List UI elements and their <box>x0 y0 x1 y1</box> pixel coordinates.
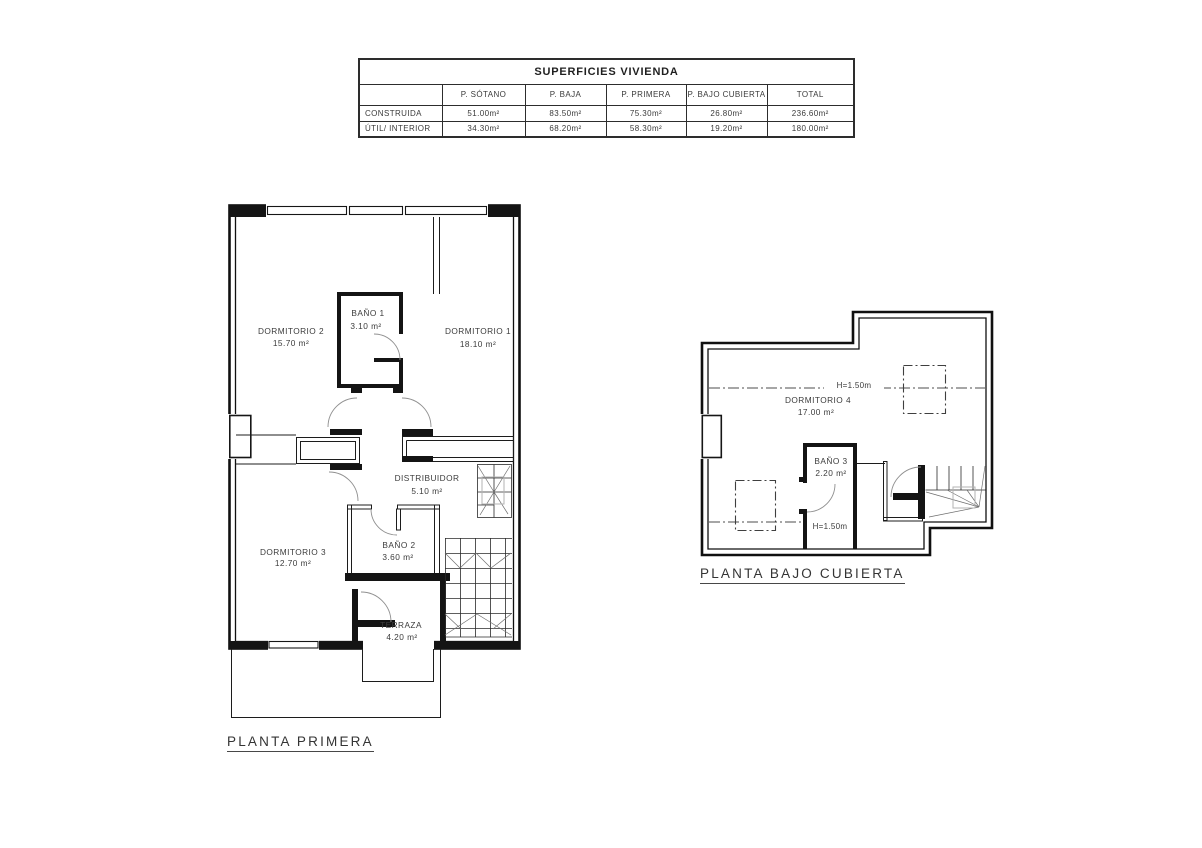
room-label-dormitorio1: DORMITORIO 1 <box>445 326 511 336</box>
room-area-dormitorio4: 17.00 m² <box>798 407 834 417</box>
table-col-header: P. BAJO CUBIERTA <box>686 84 767 105</box>
superficies-table: SUPERFICIES VIVIENDA P. SÓTANO P. BAJA P… <box>358 58 855 138</box>
planta-primera-drawing: DORMITORIO 2 15.70 m² BAÑO 1 3.10 m² DOR… <box>225 200 525 750</box>
table-cell: 83.50m² <box>525 105 606 121</box>
room-area-dormitorio1: 18.10 m² <box>460 339 496 349</box>
outer-walls <box>702 312 992 555</box>
table-cell: 236.60m² <box>767 105 854 121</box>
table-row-label: ÚTIL/ INTERIOR <box>359 121 442 137</box>
height-annotation-2: H=1.50m <box>813 522 848 531</box>
table-cell: 68.20m² <box>525 121 606 137</box>
table-cell: 34.30m² <box>442 121 525 137</box>
floor-plan-sheet: { "table": { "title": "SUPERFICIES VIVIE… <box>0 0 1202 848</box>
table-cell: 26.80m² <box>686 105 767 121</box>
vent-shaft <box>434 217 440 294</box>
room-area-dormitorio3: 12.70 m² <box>275 558 311 568</box>
table-cell: 58.30m² <box>606 121 686 137</box>
planta-bajo-cubierta-title: PLANTA BAJO CUBIERTA <box>700 566 905 584</box>
room-area-terraza: 4.20 m² <box>386 632 417 642</box>
room-area-bano2: 3.60 m² <box>382 552 413 562</box>
room-area-distribuidor: 5.10 m² <box>411 486 442 496</box>
room-label-dormitorio4: DORMITORIO 4 <box>785 395 851 405</box>
room-area-dormitorio2: 15.70 m² <box>273 338 309 348</box>
table-cell: 180.00m² <box>767 121 854 137</box>
height-annotation-1: H=1.50m <box>837 381 872 390</box>
room-label-terraza: TERRAZA <box>380 620 422 630</box>
corridor-walls <box>857 462 923 522</box>
table-title: SUPERFICIES VIVIENDA <box>359 59 854 84</box>
table-cell: 51.00m² <box>442 105 525 121</box>
table-col-header: TOTAL <box>767 84 854 105</box>
room-label-dormitorio2: DORMITORIO 2 <box>258 326 324 336</box>
table-col-header: P. BAJA <box>525 84 606 105</box>
table-row-label: CONSTRUIDA <box>359 105 442 121</box>
staircase <box>918 465 986 519</box>
terrace-walls <box>232 589 441 718</box>
table-cell: 75.30m² <box>606 105 686 121</box>
room-area-bano1: 3.10 m² <box>350 321 381 331</box>
room-label-bano2: BAÑO 2 <box>382 540 415 550</box>
window-openings <box>228 203 488 650</box>
outer-walls <box>229 205 520 649</box>
planta-bajo-cubierta-drawing: H=1.50m H=1.50m DORMITORIO 4 17.00 m² BA… <box>693 303 1005 595</box>
table-corner-cell <box>359 84 442 105</box>
planta-primera-title: PLANTA PRIMERA <box>227 734 374 752</box>
room-labels: DORMITORIO 4 17.00 m² BAÑO 3 2.20 m² <box>785 395 851 478</box>
room-label-distribuidor: DISTRIBUIDOR <box>395 473 460 483</box>
room-label-bano3: BAÑO 3 <box>814 456 847 466</box>
room-label-dormitorio3: DORMITORIO 3 <box>260 547 326 557</box>
closet-walls <box>236 429 514 470</box>
window-openings <box>700 414 723 459</box>
table-col-header: P. PRIMERA <box>606 84 686 105</box>
room-label-bano1: BAÑO 1 <box>351 308 384 318</box>
table-cell: 19.20m² <box>686 121 767 137</box>
staircase <box>440 465 512 642</box>
table-col-header: P. SÓTANO <box>442 84 525 105</box>
room-area-bano3: 2.20 m² <box>815 468 846 478</box>
